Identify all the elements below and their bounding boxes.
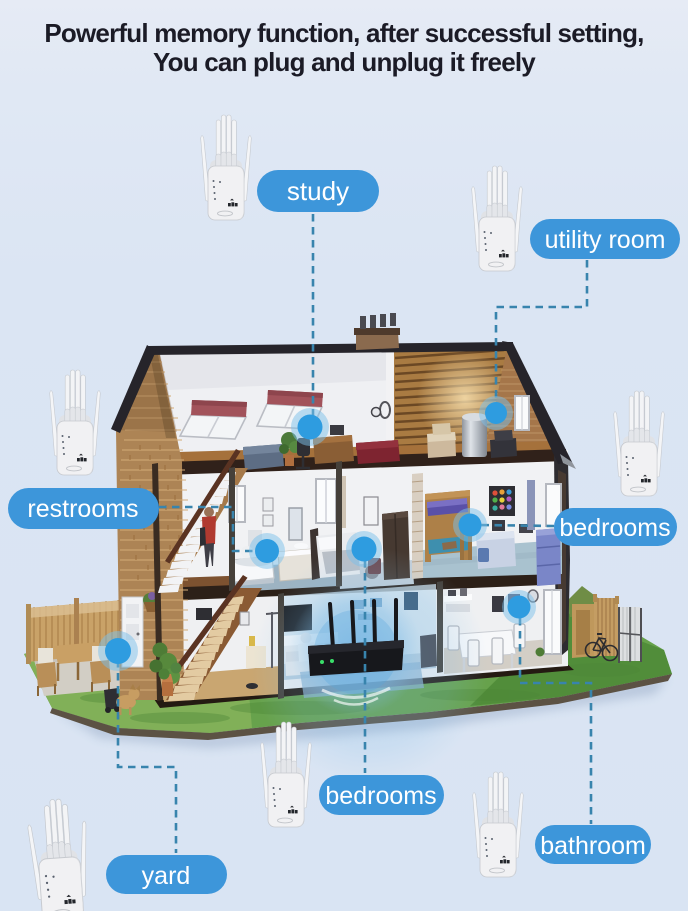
svg-text:You can plug and unplug it fre: You can plug and unplug it freely [153, 47, 536, 77]
svg-text:restrooms: restrooms [27, 495, 138, 523]
svg-text:bedrooms: bedrooms [325, 782, 436, 810]
svg-text:yard: yard [142, 862, 191, 890]
svg-text:Powerful memory function, afte: Powerful memory function, after successf… [44, 18, 643, 48]
svg-text:study: study [287, 176, 349, 206]
svg-text:bathroom: bathroom [540, 832, 646, 860]
svg-text:utility room: utility room [545, 226, 666, 254]
svg-text:bedrooms: bedrooms [559, 514, 670, 542]
